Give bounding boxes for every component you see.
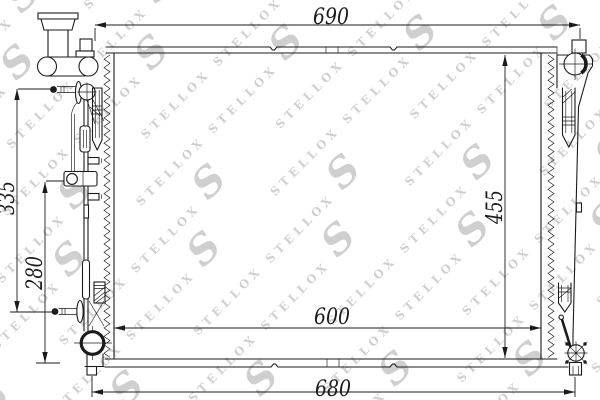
watermark-text: S	[182, 155, 236, 209]
petcock-foot	[570, 363, 582, 376]
watermark-text: S	[503, 332, 557, 386]
watermark-text: STELLOX	[190, 263, 265, 338]
bracket-plug	[572, 40, 586, 53]
drawing-svg: SSTELLOXSTELLOXSSTELLOXSTELLOXSSTELLOXST…	[0, 0, 600, 400]
dim-label-335: 335	[0, 181, 20, 215]
bottom-seam-ticks	[327, 359, 339, 367]
side-bracket	[64, 172, 97, 187]
mounting-pin-lower	[88, 194, 102, 201]
watermark-text: S	[311, 212, 365, 266]
watermark-text: STELLOX	[588, 300, 600, 375]
watermark-text: S	[259, 16, 313, 70]
inlet-tank-pipe	[38, 57, 99, 76]
right-tab	[577, 203, 582, 212]
watermark-text: STELLOX	[205, 61, 280, 136]
hose-clip	[80, 126, 90, 152]
watermark-text: STELLOX	[459, 243, 534, 318]
watermark-text: S	[0, 35, 44, 89]
watermark-text: S	[369, 341, 423, 395]
watermark-text: STELLOX	[138, 66, 213, 141]
watermark-text: S	[177, 222, 231, 276]
watermark-text: STELLOX	[392, 248, 467, 323]
bottom-edge-outer	[105, 364, 568, 367]
overflow-tube	[83, 260, 90, 299]
top-plug	[80, 39, 92, 51]
petcock-wheel	[565, 342, 588, 365]
watermark-text: STELLOX	[4, 76, 79, 151]
top-plug-flange	[76, 51, 94, 57]
watermark-text: S	[0, 371, 19, 400]
watermark-text: STELLOX	[272, 56, 347, 131]
radiator-technical-drawing: SSTELLOXSTELLOXSSTELLOXSTELLOXSSTELLOXST…	[0, 0, 600, 400]
watermark-text: STELLOX	[340, 51, 415, 126]
watermark-text: STELLOX	[123, 268, 198, 343]
tank-slot	[84, 205, 89, 218]
dim-label-600: 600	[314, 305, 350, 330]
watermark-text: S	[393, 6, 447, 60]
dim-label-280: 280	[23, 256, 48, 291]
filler-cap-top	[38, 13, 78, 19]
mounting-pin-upper	[88, 158, 102, 165]
watermark-text: S	[125, 25, 179, 79]
filler-neck	[48, 30, 68, 57]
dim-label-690: 690	[313, 5, 349, 30]
dim-label-680: 680	[315, 377, 351, 400]
pipe-stub-left	[94, 282, 105, 303]
dim-label-455: 455	[483, 190, 508, 225]
watermark-text: S	[451, 135, 505, 189]
watermark-text: STELLOX	[526, 238, 600, 313]
watermark-text: STELLOX	[407, 47, 482, 122]
watermark-text: S	[316, 145, 370, 199]
filler-cap-body	[41, 19, 75, 30]
